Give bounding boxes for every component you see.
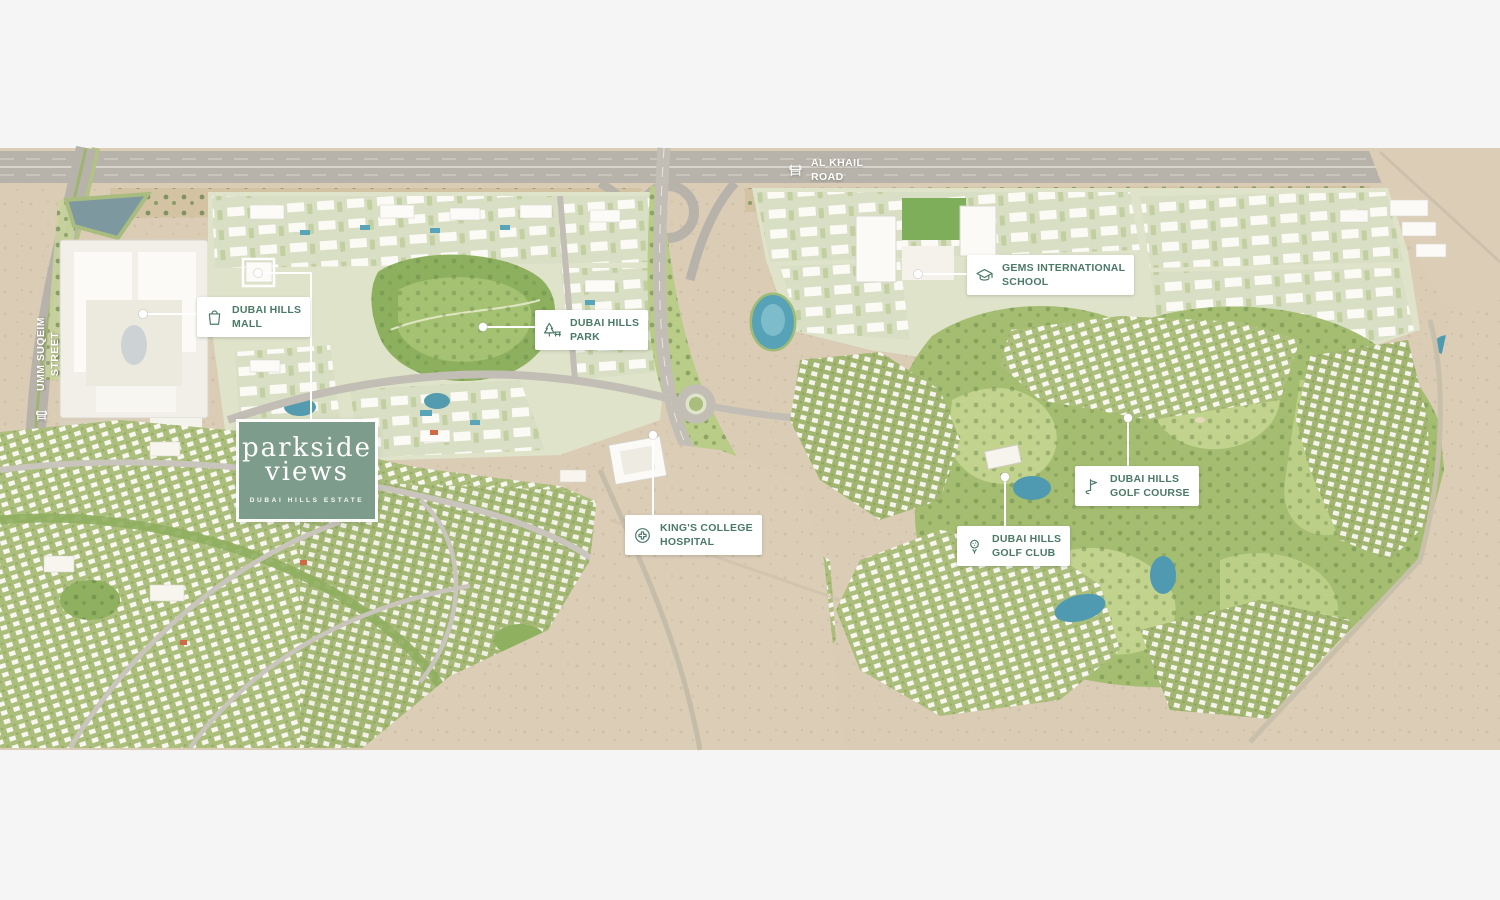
road-label-al-khail-road: AL KHAILROAD (787, 156, 863, 184)
road-label-umm-suqeim-street: UMM SUQEIMSTREET (34, 306, 62, 402)
logo-subtitle: DUBAI HILLS ESTATE (250, 497, 364, 504)
road-label-text: UMM SUQEIMSTREET (34, 306, 62, 402)
poi-label-dubai-hills-golf-club: DUBAI HILLSGOLF CLUB (957, 526, 1070, 566)
poi-label-text: KING'S COLLEGEHOSPITAL (660, 521, 753, 549)
poi-label-text: GEMS INTERNATIONALSCHOOL (1002, 261, 1125, 289)
parkside-views-logo-card: parkside views DUBAI HILLS ESTATE (239, 422, 375, 519)
shopping-bag-icon (205, 308, 224, 327)
medical-cross-icon (633, 526, 652, 545)
road-sign-icon (787, 162, 804, 179)
hospital-building (609, 436, 667, 484)
logo-title-line2: views (265, 461, 349, 485)
masterplan-page: DUBAI HILLSMALL DUBAI HILLSPARK GEMS INT… (0, 0, 1500, 900)
road-label-text: AL KHAILROAD (811, 156, 863, 184)
poi-label-text: DUBAI HILLSGOLF COURSE (1110, 472, 1190, 500)
park-tree-icon (543, 321, 562, 340)
umm-suqeim-street-icon-wrap (34, 408, 49, 423)
golf-flag-icon (1083, 477, 1102, 496)
poi-label-gems-international-school: GEMS INTERNATIONALSCHOOL (967, 255, 1134, 295)
map-artwork (0, 0, 1500, 900)
poi-label-text: DUBAI HILLSPARK (570, 316, 639, 344)
golf-ball-icon (965, 537, 984, 556)
graduation-cap-icon (975, 266, 994, 285)
poi-label-kings-college-hospital: KING'S COLLEGEHOSPITAL (625, 515, 762, 555)
poi-label-text: DUBAI HILLSMALL (232, 303, 301, 331)
poi-label-text: DUBAI HILLSGOLF CLUB (992, 532, 1061, 560)
poi-label-dubai-hills-golf-course: DUBAI HILLSGOLF COURSE (1075, 466, 1199, 506)
poi-label-dubai-hills-park: DUBAI HILLSPARK (535, 310, 648, 350)
road-sign-icon (34, 408, 49, 423)
poi-label-dubai-hills-mall: DUBAI HILLSMALL (197, 297, 310, 337)
